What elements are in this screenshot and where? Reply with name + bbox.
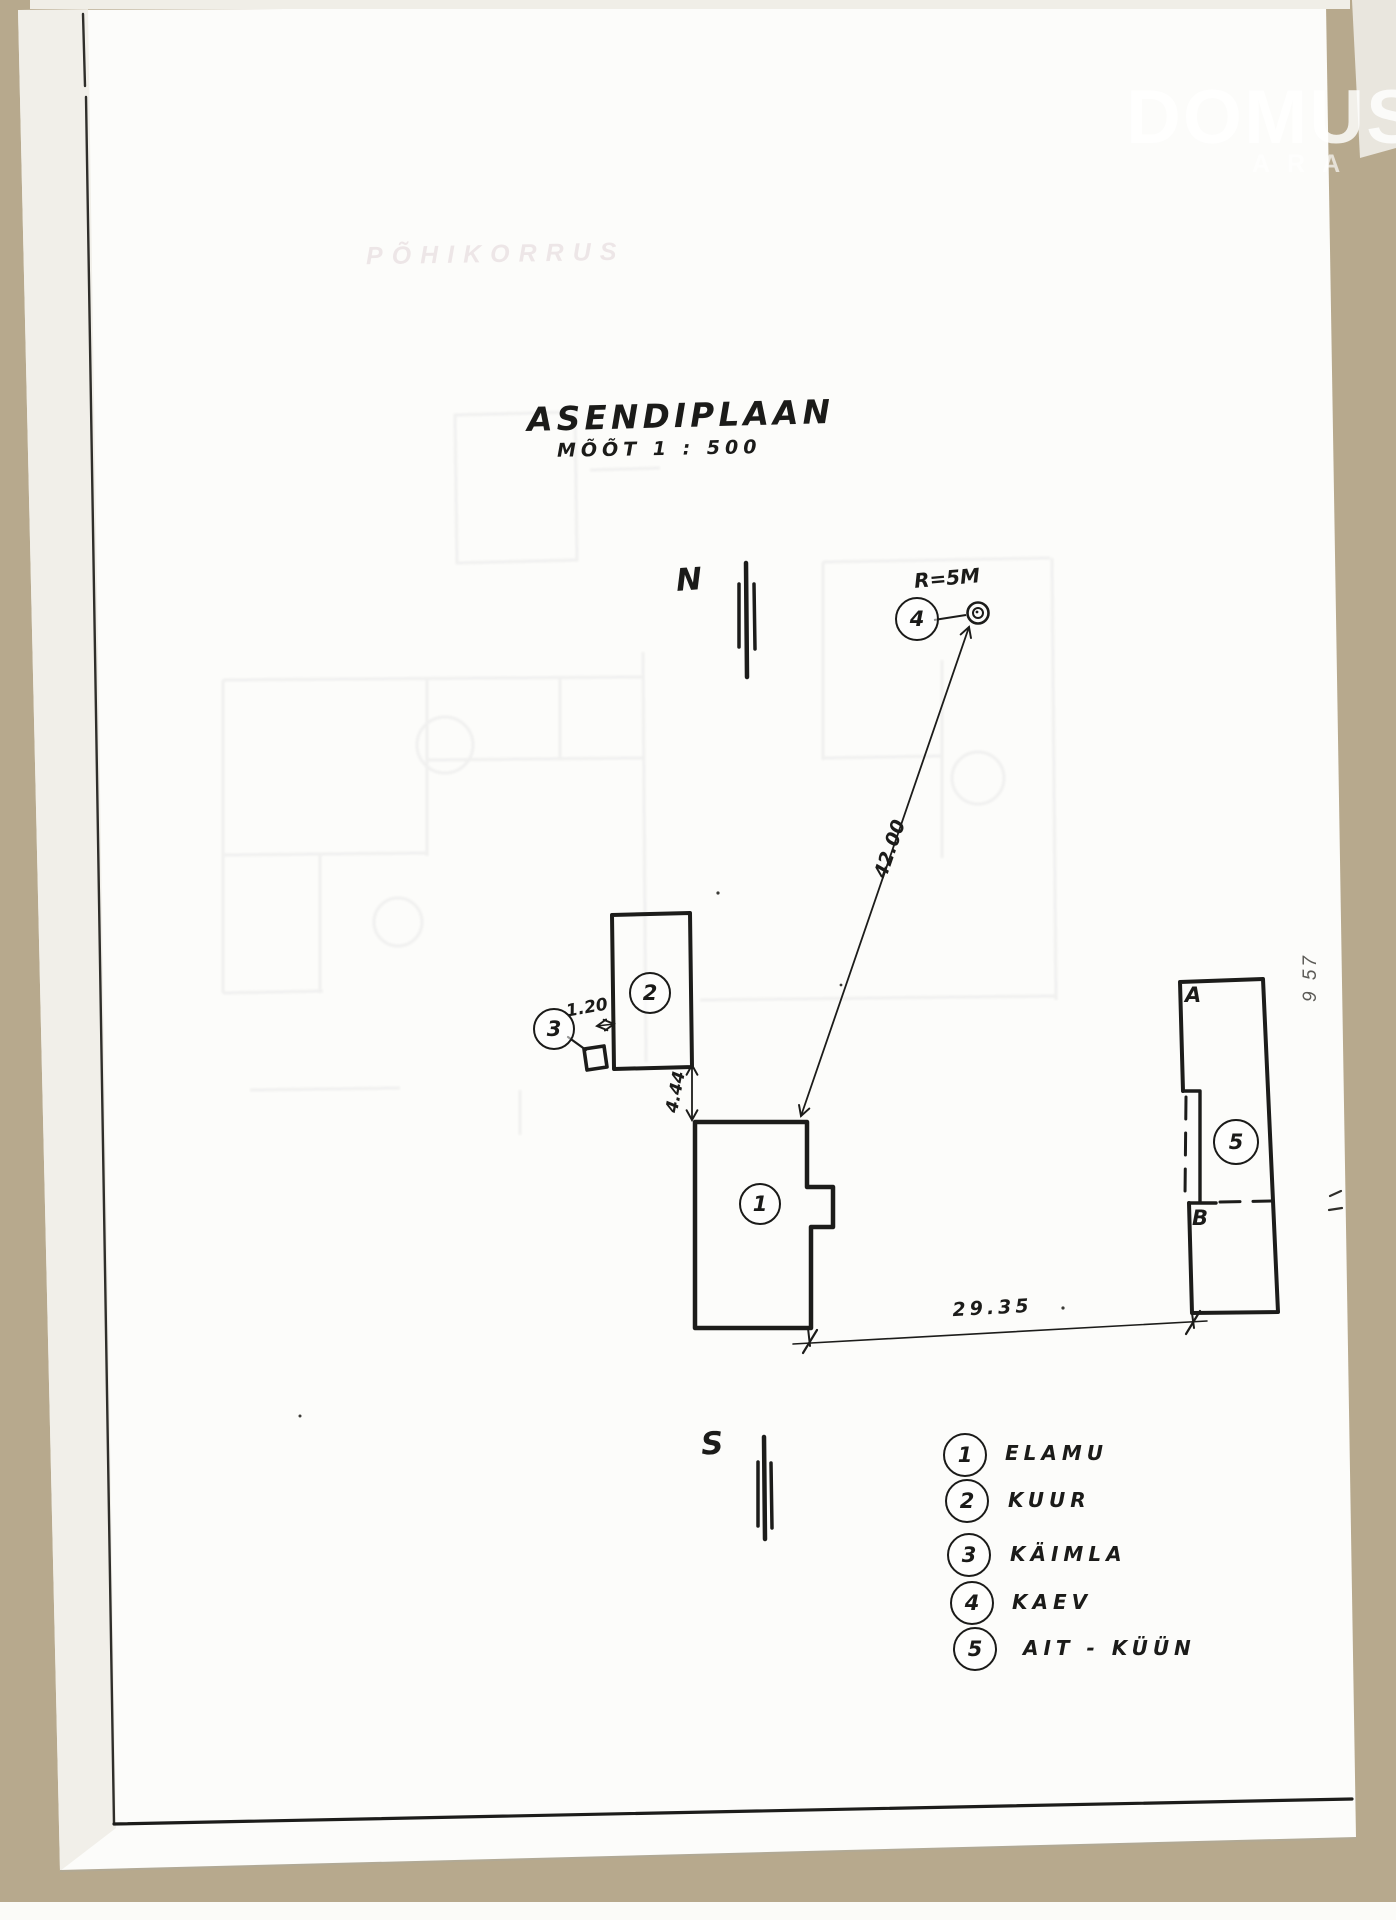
- legend-marker-1: 1: [943, 1433, 987, 1477]
- scan-bottom-strip: [0, 1902, 1396, 1920]
- south-label: S: [700, 1425, 725, 1462]
- plan-marker-2: 2: [629, 972, 671, 1014]
- plan-marker-1-num: 1: [753, 1192, 768, 1216]
- plan-marker-2-num: 2: [643, 981, 658, 1005]
- legend-marker-4-num: 4: [965, 1591, 980, 1615]
- scanned-site-plan-page: ASENDIPLAAN MÕÕT 1 : 500 N S 1 2 3 4 5 R…: [0, 0, 1396, 1920]
- plan-marker-5: 5: [1213, 1119, 1259, 1165]
- legend-marker-3: 3: [947, 1533, 991, 1577]
- scan-top-strip: [30, 0, 1350, 9]
- legend-label-elamu: ELAMU: [1005, 1441, 1108, 1465]
- legend-marker-3-num: 3: [962, 1543, 977, 1567]
- scale-label: MÕÕT 1 : 500: [557, 436, 762, 462]
- margin-note: 9 57: [1300, 953, 1322, 1002]
- plan-marker-5-num: 5: [1229, 1130, 1244, 1154]
- corner-label-b: B: [1192, 1206, 1208, 1230]
- plan-marker-1: 1: [739, 1183, 781, 1225]
- plan-drawing: [0, 0, 1396, 1920]
- corner-label-a: A: [1185, 983, 1201, 1007]
- north-label: N: [675, 561, 703, 599]
- bleedthrough-heading: PÕHIKORRUS: [366, 238, 626, 272]
- legend-marker-2: 2: [945, 1479, 989, 1523]
- legend-marker-5: 5: [953, 1627, 997, 1671]
- watermark-ara: ARA: [1252, 150, 1357, 179]
- legend-label-kuur: KUUR: [1008, 1488, 1091, 1512]
- plan-marker-4: 4: [895, 597, 939, 641]
- legend-marker-1-num: 1: [958, 1443, 973, 1467]
- legend-label-aitkuun: AIT - KÜÜN: [1023, 1636, 1196, 1660]
- legend-marker-4: 4: [950, 1581, 994, 1625]
- page-title: ASENDIPLAAN: [527, 392, 835, 439]
- legend-marker-5-num: 5: [968, 1637, 983, 1661]
- paper-sheet: [18, 5, 1356, 1871]
- legend-label-kaimla: KÄIMLA: [1010, 1542, 1127, 1566]
- watermark-domus: DOMUS: [1126, 74, 1396, 161]
- plan-marker-3-num: 3: [547, 1017, 562, 1041]
- building-5-hidden-wall-dashed: [1185, 1097, 1186, 1196]
- legend-marker-2-num: 2: [960, 1489, 975, 1513]
- plan-marker-4-num: 4: [910, 607, 925, 631]
- legend-label-kaev: KAEV: [1012, 1590, 1092, 1614]
